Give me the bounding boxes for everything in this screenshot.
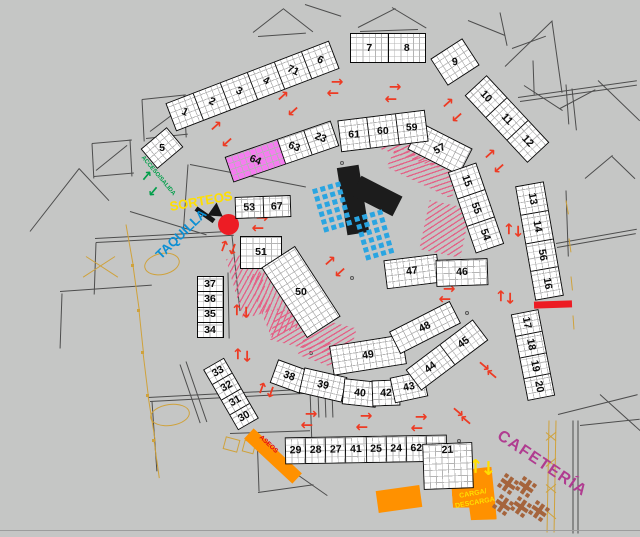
chair bbox=[321, 219, 327, 225]
wall-segment bbox=[30, 168, 80, 232]
chair bbox=[326, 209, 332, 215]
stall-number: 1 bbox=[180, 106, 190, 118]
wall-segment bbox=[500, 12, 508, 45]
chair bbox=[329, 217, 335, 223]
stall-cell: 67 bbox=[263, 196, 290, 217]
stall-number: 12 bbox=[520, 133, 536, 149]
wall-segment bbox=[571, 276, 573, 290]
chair bbox=[379, 217, 385, 223]
chair bbox=[372, 219, 378, 225]
wall-segment bbox=[60, 293, 63, 348]
stall-number: 33 bbox=[210, 364, 225, 379]
stall-53: 5367 bbox=[235, 195, 292, 219]
stall-number: 19 bbox=[529, 359, 542, 372]
stall-number: 7 bbox=[366, 43, 372, 54]
stall-number: 14 bbox=[530, 220, 542, 233]
stall-number: 51 bbox=[255, 247, 267, 258]
wall-segment bbox=[558, 394, 638, 415]
stall-number: 2 bbox=[207, 96, 217, 108]
stall-number: 4 bbox=[261, 75, 271, 87]
wall-segment bbox=[600, 394, 640, 431]
wall-segment bbox=[154, 440, 160, 478]
furniture-outline bbox=[223, 436, 241, 452]
chair bbox=[331, 224, 337, 230]
chair bbox=[358, 231, 364, 237]
stall-number: 20 bbox=[533, 380, 546, 393]
chair-block bbox=[354, 209, 398, 264]
stall-number: 45 bbox=[456, 335, 472, 350]
stall-cell: 27 bbox=[326, 437, 347, 462]
stall-10: 101112 bbox=[465, 75, 550, 163]
chair bbox=[324, 201, 330, 207]
chair bbox=[380, 250, 386, 256]
chair bbox=[365, 255, 371, 261]
flow-arrow-red: → bbox=[503, 292, 518, 305]
wall-segment bbox=[612, 156, 636, 179]
stall-number: 17 bbox=[521, 316, 534, 329]
wall-segment bbox=[468, 20, 505, 36]
chair bbox=[342, 205, 348, 211]
stall-number: 6 bbox=[315, 54, 325, 66]
chair bbox=[363, 247, 369, 253]
stall-number: 41 bbox=[350, 444, 362, 455]
flow-arrow-red: → bbox=[283, 101, 302, 121]
stall-cell: 46 bbox=[437, 259, 488, 286]
flow-arrow-red: → bbox=[301, 418, 314, 433]
chair bbox=[330, 191, 336, 197]
stall-cell: 41 bbox=[346, 436, 367, 461]
table-seat bbox=[545, 507, 551, 513]
stall-cell: 21 bbox=[423, 443, 473, 489]
vertex-dot bbox=[340, 161, 344, 165]
stall-number: 59 bbox=[406, 122, 418, 133]
stall-number: 64 bbox=[248, 153, 263, 167]
stall-number: 49 bbox=[361, 349, 374, 361]
chair bbox=[374, 227, 380, 233]
chair bbox=[339, 197, 345, 203]
stall-47: 47 bbox=[383, 253, 440, 288]
chair bbox=[335, 181, 341, 187]
wall-segment bbox=[258, 484, 314, 493]
wall-segment bbox=[126, 224, 134, 266]
stall-cell: 7 bbox=[351, 34, 389, 62]
stall-21: 21 bbox=[422, 442, 474, 490]
stall-cell: 34 bbox=[198, 323, 223, 337]
wall-segment bbox=[358, 8, 396, 28]
wall-segment bbox=[392, 7, 427, 28]
wall-segment bbox=[83, 256, 115, 278]
wall-segment bbox=[305, 4, 341, 17]
stall-cell: 61 bbox=[338, 118, 370, 151]
stall-number: 8 bbox=[404, 43, 410, 54]
stall-number: 25 bbox=[370, 443, 382, 454]
wall-segment bbox=[94, 173, 134, 177]
stall-number: 15 bbox=[460, 174, 474, 188]
loading-arrow-yellow: → bbox=[479, 460, 498, 476]
chair bbox=[371, 245, 377, 251]
chair bbox=[344, 212, 350, 218]
stall-number: 46 bbox=[456, 267, 468, 278]
stall-number: 40 bbox=[354, 387, 367, 399]
wall-segment bbox=[573, 315, 575, 329]
stall-cell: 24 bbox=[386, 436, 407, 461]
chair bbox=[354, 216, 360, 222]
wall-segment bbox=[96, 145, 128, 171]
wall-segment bbox=[533, 60, 535, 94]
wall-segment bbox=[139, 310, 144, 352]
stall-number: 42 bbox=[380, 388, 392, 399]
wall-segment bbox=[133, 265, 140, 311]
chair bbox=[361, 239, 367, 245]
stall-number: 38 bbox=[282, 369, 297, 383]
wall-segment bbox=[230, 430, 310, 434]
wall-segment bbox=[142, 99, 145, 141]
fence-post bbox=[131, 264, 134, 267]
venue-floor-plan: →→→→→→→→→→→→→→→→→→→→→→→→→→→→→→→→→→→→→→→→… bbox=[0, 0, 640, 537]
stall-cell: 47 bbox=[385, 254, 440, 287]
chair bbox=[316, 203, 322, 209]
stall-number: 56 bbox=[535, 248, 547, 261]
stall-cell: 56 bbox=[526, 239, 558, 272]
chair bbox=[362, 214, 368, 220]
stall-cell: 9 bbox=[432, 40, 479, 85]
stall-number: 35 bbox=[204, 309, 216, 320]
flow-arrow-red: → bbox=[239, 306, 254, 319]
fence-post bbox=[152, 439, 155, 442]
banquet-table-outline bbox=[149, 401, 192, 428]
chair bbox=[356, 224, 362, 230]
chair bbox=[327, 184, 333, 190]
stall-number: 57 bbox=[432, 142, 447, 157]
chair bbox=[338, 222, 344, 228]
stall-7: 78 bbox=[350, 33, 426, 63]
flow-arrow-red: → bbox=[330, 262, 349, 282]
stall-number: 71 bbox=[285, 63, 300, 77]
chair bbox=[369, 212, 375, 218]
stall-46: 46 bbox=[436, 258, 489, 287]
chair bbox=[320, 186, 326, 192]
vertex-dot bbox=[350, 276, 354, 280]
fence-post bbox=[146, 394, 149, 397]
stall-number: 18 bbox=[525, 338, 538, 351]
cafeteria-table-icon bbox=[510, 496, 532, 518]
stall-number: 44 bbox=[423, 360, 439, 375]
stall-number: 63 bbox=[287, 140, 302, 154]
flow-arrow-red: → bbox=[447, 107, 466, 127]
flow-arrow-red: → bbox=[356, 420, 369, 435]
wall-segment bbox=[552, 21, 563, 92]
stall-1: 1234716 bbox=[165, 41, 339, 132]
chair bbox=[332, 199, 338, 205]
stall-number: 67 bbox=[271, 201, 283, 212]
stall-cell: 35 bbox=[198, 308, 223, 323]
stall-cell: 20 bbox=[524, 374, 553, 399]
stall-number: 29 bbox=[290, 445, 302, 456]
stall-number: 16 bbox=[540, 277, 552, 290]
wall-segment bbox=[258, 33, 306, 37]
stall-number: 21 bbox=[441, 445, 453, 456]
wall-segment bbox=[86, 256, 118, 278]
flow-arrow-red: → bbox=[411, 421, 424, 436]
stall-number: 55 bbox=[469, 201, 483, 215]
flow-arrow-red: → bbox=[217, 132, 236, 152]
table-seat bbox=[507, 490, 513, 496]
red-barrier-bar bbox=[534, 300, 572, 308]
table-seat bbox=[538, 517, 544, 523]
stall-37: 37363534 bbox=[197, 276, 224, 338]
stall-9: 9 bbox=[430, 38, 479, 86]
chair bbox=[377, 209, 383, 215]
wall-segment bbox=[60, 285, 152, 292]
cafeteria-table-icon bbox=[497, 473, 519, 495]
stall-number: 62 bbox=[410, 443, 422, 454]
stall-cell: 60 bbox=[367, 114, 399, 147]
chair bbox=[319, 211, 325, 217]
chair bbox=[336, 214, 342, 220]
stall-cell: 36 bbox=[198, 292, 223, 307]
stall-cell: 28 bbox=[306, 437, 327, 462]
stall-number: 36 bbox=[204, 294, 216, 305]
chair bbox=[388, 248, 394, 254]
wall-segment bbox=[524, 85, 563, 111]
chair bbox=[381, 225, 387, 231]
stall-cell: 37 bbox=[198, 277, 223, 292]
flow-arrow-red: → bbox=[385, 92, 398, 107]
chair bbox=[366, 229, 372, 235]
table-seat bbox=[525, 493, 531, 499]
chair bbox=[337, 189, 343, 195]
stall-number: 43 bbox=[402, 381, 416, 394]
fence-post bbox=[137, 309, 140, 312]
stall-number: 23 bbox=[314, 131, 329, 145]
wall-segment bbox=[505, 20, 553, 67]
stall-17: 17181920 bbox=[511, 309, 555, 401]
stall-number: 5 bbox=[159, 143, 165, 154]
wall-segment bbox=[512, 36, 546, 49]
wall-segment bbox=[518, 80, 637, 98]
stall-number: 47 bbox=[406, 265, 419, 277]
stall-number: 61 bbox=[348, 129, 360, 140]
chair bbox=[312, 188, 318, 194]
fence-post bbox=[141, 351, 144, 354]
stall-cell: 53 bbox=[236, 197, 264, 218]
stall-cell: 14 bbox=[521, 211, 553, 244]
chair bbox=[364, 222, 370, 228]
stall-number: 24 bbox=[390, 443, 402, 454]
chair bbox=[384, 233, 390, 239]
stall-cell: 25 bbox=[366, 436, 387, 461]
chair bbox=[323, 227, 329, 233]
stall-cell: 16 bbox=[531, 267, 562, 299]
chair bbox=[386, 240, 392, 246]
stall-number: 48 bbox=[417, 320, 432, 335]
stall-number: 9 bbox=[451, 56, 458, 67]
wall-segment bbox=[130, 139, 133, 176]
chair bbox=[346, 220, 352, 226]
chair bbox=[373, 252, 379, 258]
flow-arrow-red: → bbox=[262, 384, 280, 401]
stall-number: 30 bbox=[236, 409, 251, 424]
stall-number: 27 bbox=[330, 444, 342, 455]
table-seat bbox=[532, 483, 538, 489]
wall-segment bbox=[283, 8, 314, 32]
stall-number: 32 bbox=[219, 379, 234, 394]
chair bbox=[314, 196, 320, 202]
flow-arrow-red: → bbox=[489, 158, 508, 178]
wall-segment bbox=[572, 88, 577, 130]
wall-segment bbox=[143, 352, 149, 396]
stall-number: 34 bbox=[204, 325, 216, 336]
wall-segment bbox=[92, 140, 132, 144]
wall-segment bbox=[360, 29, 418, 32]
chair bbox=[334, 207, 340, 213]
vertex-dot bbox=[465, 311, 469, 315]
flow-arrow-red: → bbox=[327, 86, 340, 101]
stall-cell: 8 bbox=[389, 34, 426, 62]
flow-arrow-red: → bbox=[252, 221, 265, 236]
stall-number: 39 bbox=[316, 379, 330, 392]
stall-number: 37 bbox=[204, 279, 216, 290]
stall-number: 13 bbox=[525, 192, 537, 205]
stall-cell: 13 bbox=[516, 183, 548, 216]
stall-number: 10 bbox=[478, 89, 494, 105]
stall-number: 3 bbox=[234, 85, 244, 97]
stall-number: 60 bbox=[377, 126, 389, 137]
wall-segment bbox=[0, 530, 640, 531]
access-arrow-green: → bbox=[144, 182, 162, 200]
chair bbox=[376, 235, 382, 241]
stall-number: 28 bbox=[310, 445, 322, 456]
chair bbox=[322, 194, 328, 200]
chair bbox=[368, 237, 374, 243]
stall-number: 31 bbox=[228, 394, 243, 409]
wall-segment bbox=[585, 155, 613, 179]
stall-number: 11 bbox=[499, 111, 514, 126]
stall-number: 54 bbox=[478, 228, 492, 242]
table-seat bbox=[502, 511, 508, 517]
table-seat bbox=[520, 513, 526, 519]
stall-number: 50 bbox=[295, 287, 307, 298]
flow-arrow-red: → bbox=[240, 350, 255, 363]
stall-cell: 59 bbox=[396, 111, 427, 144]
chair bbox=[378, 242, 384, 248]
wall-segment bbox=[92, 143, 95, 178]
stall-13: 13145616 bbox=[515, 181, 564, 300]
wall-segment bbox=[253, 9, 284, 33]
loading-small bbox=[376, 485, 423, 513]
stall-64: 646323 bbox=[225, 120, 340, 182]
stall-number: 53 bbox=[243, 202, 255, 213]
stall-cell: 29 bbox=[286, 438, 307, 463]
